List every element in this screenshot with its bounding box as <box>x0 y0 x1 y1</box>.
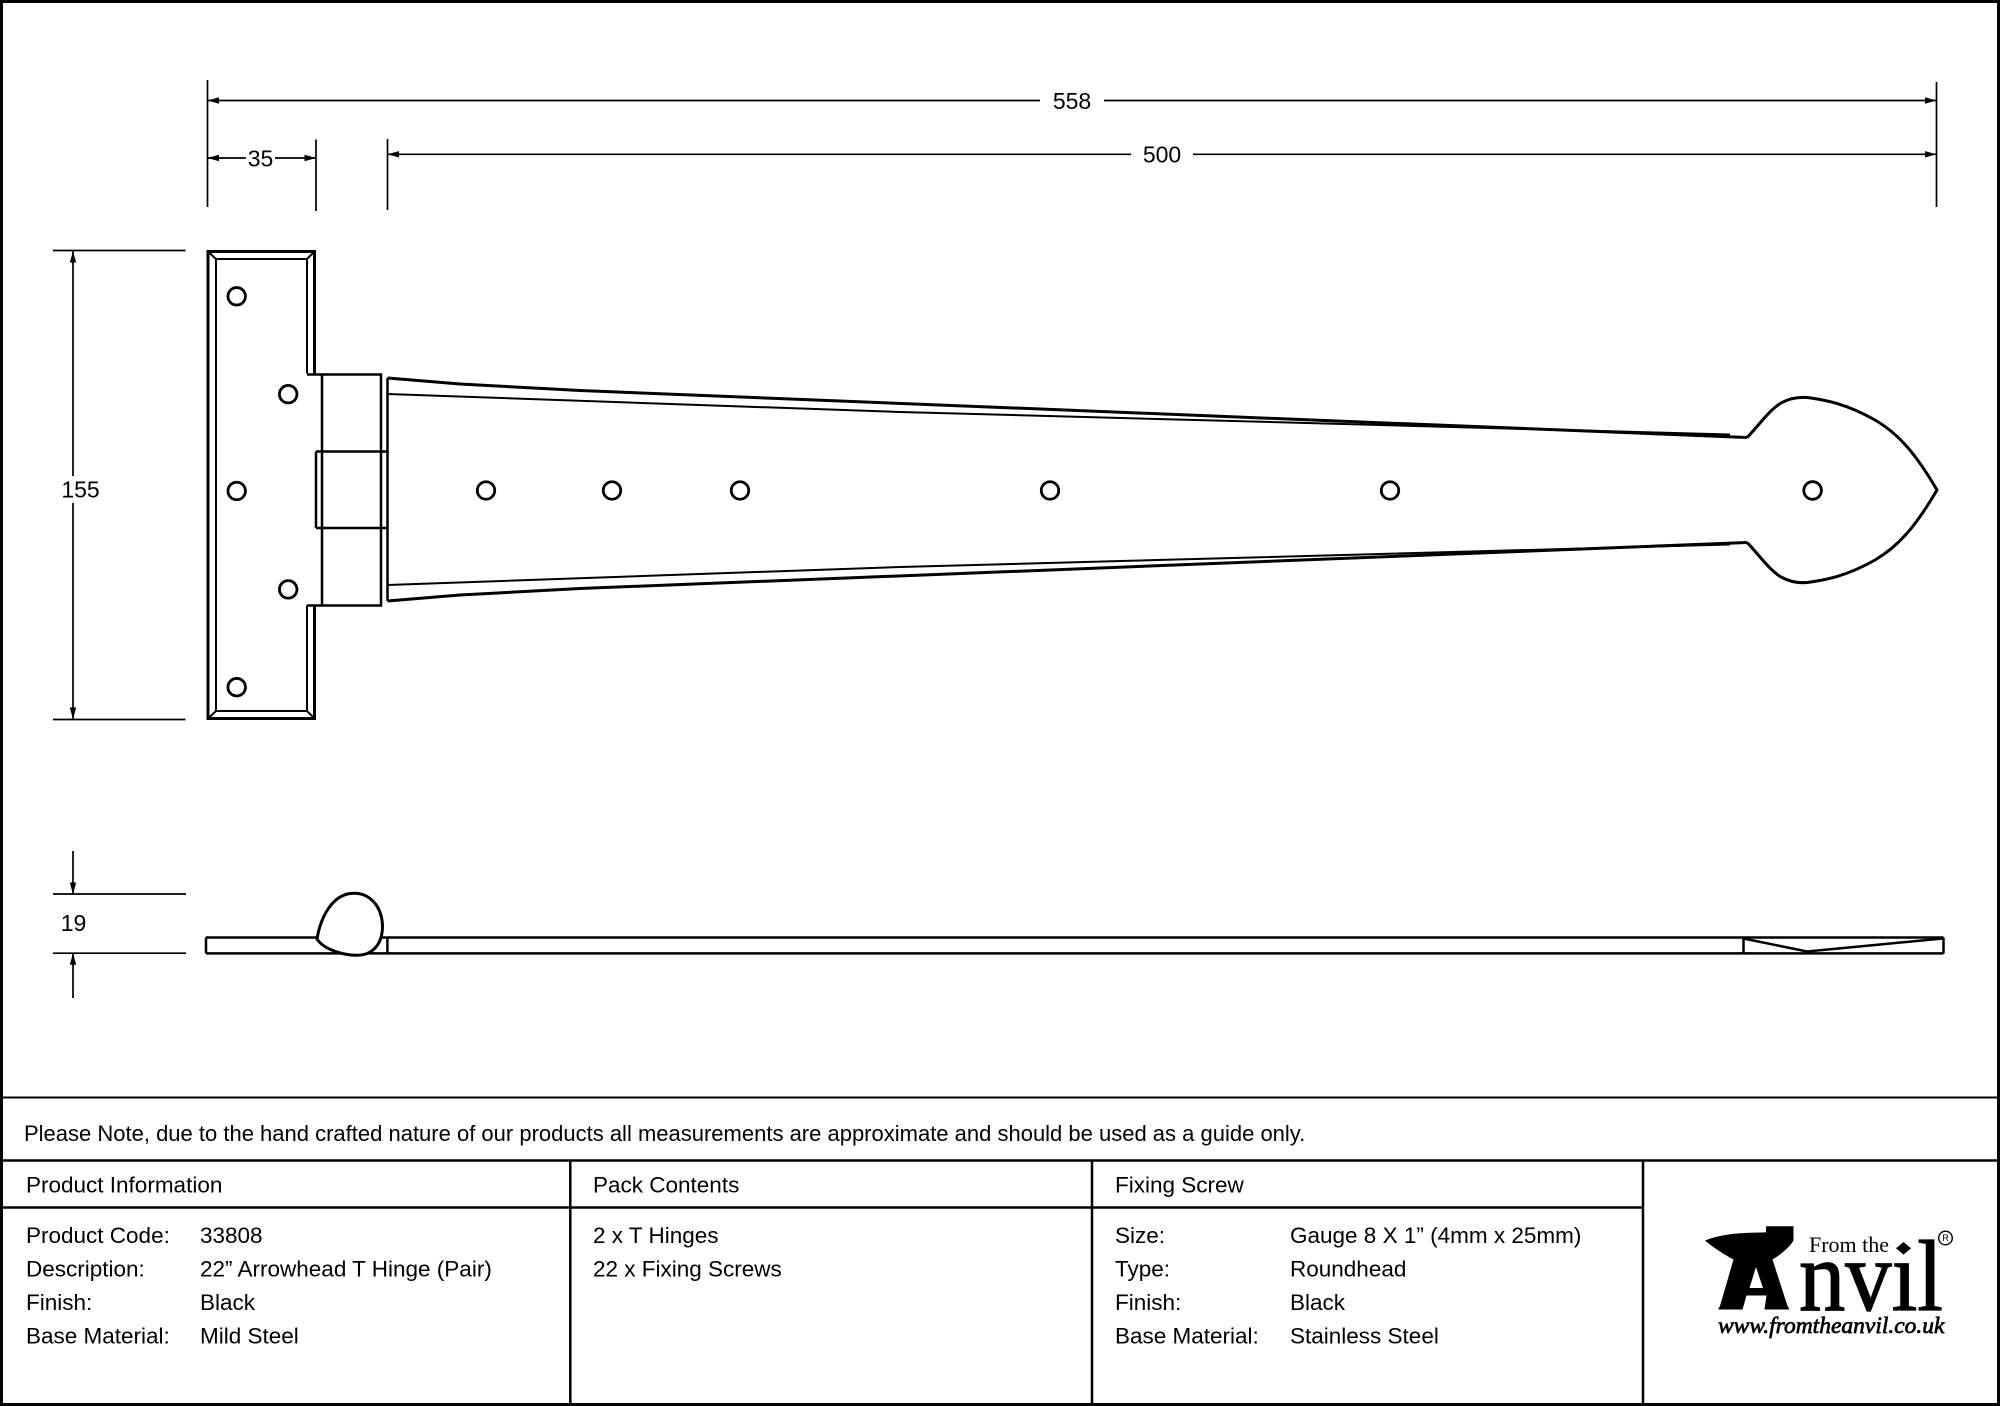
svg-text:500: 500 <box>1143 142 1181 168</box>
svg-text:www.fromtheanvil.co.uk: www.fromtheanvil.co.uk <box>1718 1313 1945 1339</box>
svg-text:Pack Contents: Pack Contents <box>593 1173 739 1198</box>
svg-text:Size:: Size: <box>1115 1223 1165 1248</box>
svg-text:Fixing Screw: Fixing Screw <box>1115 1173 1245 1198</box>
svg-text:22 x Fixing Screws: 22 x Fixing Screws <box>593 1257 782 1282</box>
svg-text:Product Information: Product Information <box>26 1173 222 1198</box>
svg-text:Please Note, due to the hand c: Please Note, due to the hand crafted nat… <box>24 1121 1305 1146</box>
svg-text:22” Arrowhead T Hinge (Pair): 22” Arrowhead T Hinge (Pair) <box>200 1257 492 1282</box>
svg-text:Black: Black <box>1290 1290 1346 1315</box>
svg-text:Gauge 8 X 1” (4mm x 25mm): Gauge 8 X 1” (4mm x 25mm) <box>1290 1223 1581 1248</box>
svg-text:Finish:: Finish: <box>1115 1290 1181 1315</box>
svg-text:155: 155 <box>61 476 99 502</box>
svg-text:Product Code:: Product Code: <box>26 1223 170 1248</box>
svg-text:Type:: Type: <box>1115 1257 1170 1282</box>
svg-text:Description:: Description: <box>26 1257 145 1282</box>
svg-text:Base Material:: Base Material: <box>26 1324 170 1349</box>
svg-text:Mild Steel: Mild Steel <box>200 1324 299 1349</box>
svg-text:Finish:: Finish: <box>26 1290 92 1315</box>
svg-text:2 x T Hinges: 2 x T Hinges <box>593 1223 719 1248</box>
svg-text:33808: 33808 <box>200 1223 263 1248</box>
svg-text:R: R <box>1942 1233 1949 1243</box>
svg-text:Stainless Steel: Stainless Steel <box>1290 1324 1439 1349</box>
svg-text:19: 19 <box>61 910 87 936</box>
svg-text:Roundhead: Roundhead <box>1290 1257 1406 1282</box>
svg-text:Black: Black <box>200 1290 256 1315</box>
svg-text:35: 35 <box>248 145 274 171</box>
svg-text:Base Material:: Base Material: <box>1115 1324 1259 1349</box>
svg-text:558: 558 <box>1053 88 1091 114</box>
svg-text:From the: From the <box>1809 1232 1889 1257</box>
